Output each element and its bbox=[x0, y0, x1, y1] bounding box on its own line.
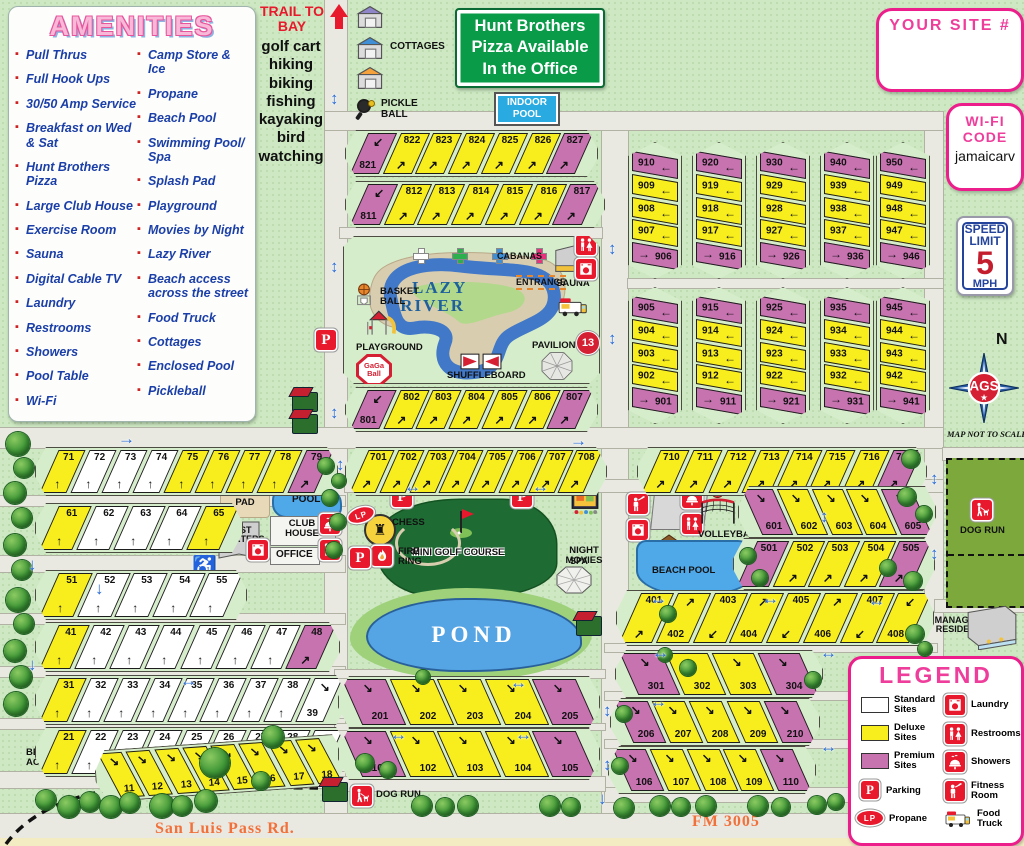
site-number: 75 bbox=[187, 453, 198, 463]
laundry-icon bbox=[628, 520, 648, 540]
legend-item-showers: Showers bbox=[945, 752, 1019, 772]
site-number: 202 bbox=[420, 712, 437, 722]
direction-arrow-icon: ↘ bbox=[778, 656, 788, 668]
amenity-item: Movies by Night bbox=[148, 223, 249, 237]
playground-icon bbox=[366, 309, 398, 344]
site-number: 946 bbox=[903, 253, 920, 263]
basketball-label: BASKETBALL bbox=[380, 287, 419, 307]
site-number: 931 bbox=[847, 398, 864, 408]
tree-icon bbox=[696, 796, 716, 816]
direction-arrow-icon: ↗ bbox=[510, 478, 520, 490]
your-site-box: YOUR SITE # bbox=[876, 8, 1024, 92]
direction-arrow-icon: ↑ bbox=[95, 602, 101, 614]
traffic-arrow-icon: ↔ bbox=[180, 672, 197, 689]
direction-arrow-icon: → bbox=[638, 248, 650, 260]
direction-arrow-icon: ← bbox=[852, 184, 864, 196]
site-number: 704 bbox=[459, 453, 476, 463]
site-number: 919 bbox=[702, 181, 719, 191]
tree-icon bbox=[918, 642, 932, 656]
laundry-icon bbox=[576, 259, 596, 279]
site-number: 805 bbox=[501, 393, 518, 403]
site-number: 904 bbox=[638, 326, 655, 336]
amenity-item: Camp Store & Ice bbox=[148, 48, 249, 77]
direction-arrow-icon: ↑ bbox=[196, 654, 202, 666]
direction-arrow-icon: ← bbox=[660, 351, 672, 363]
lazy-river-area: LAZYRIVER CABANAS ENTRANCE SAUNA BASKETB… bbox=[343, 236, 600, 384]
sauna-label: SAUNA bbox=[556, 279, 590, 289]
legend-label: Food Truck bbox=[977, 809, 1019, 829]
direction-arrow-icon: ↗ bbox=[494, 159, 504, 171]
tree-icon bbox=[614, 798, 634, 818]
tree-icon bbox=[6, 432, 30, 456]
traffic-arrow-icon: ↕ bbox=[608, 330, 617, 347]
direction-arrow-icon: ↑ bbox=[204, 535, 210, 547]
site-number: 827 bbox=[567, 136, 584, 146]
amenities-panel: AMENITIES Pull ThrusFull Hook Ups30/50 A… bbox=[8, 6, 256, 422]
site-number: 47 bbox=[276, 628, 287, 638]
tree-icon bbox=[808, 796, 826, 814]
legend-label: Deluxe Sites bbox=[894, 723, 941, 743]
site-strip: ↘106↘107↘108↘109↘110 bbox=[608, 746, 816, 794]
site-number: 77 bbox=[249, 453, 260, 463]
site-number: 923 bbox=[766, 349, 783, 359]
site-941: →941 bbox=[880, 387, 926, 415]
site-number: 78 bbox=[280, 453, 291, 463]
trail-arrow-icon bbox=[330, 4, 348, 17]
site-number: 405 bbox=[793, 596, 810, 606]
site-number: 41 bbox=[65, 628, 76, 638]
trail-activities: golf carthikingbikingfishingkayakingbird… bbox=[252, 38, 330, 166]
direction-arrow-icon: ↑ bbox=[231, 654, 237, 666]
direction-arrow-icon: → bbox=[766, 393, 778, 405]
site-number: 713 bbox=[763, 453, 780, 463]
amenity-item: Sauna bbox=[26, 247, 137, 261]
dumpster-icon bbox=[322, 782, 348, 802]
site-number: 716 bbox=[863, 453, 880, 463]
direction-arrow-icon: ↑ bbox=[271, 478, 277, 490]
site-strip: ↘206↘207↘208↘209↘210 bbox=[610, 698, 820, 746]
direction-arrow-icon: ↘ bbox=[667, 704, 677, 716]
traffic-arrow-icon: ↔ bbox=[650, 590, 667, 607]
site-number: 63 bbox=[140, 509, 151, 519]
site-number: 403 bbox=[719, 596, 736, 606]
legend-item-standard-sites: Standard Sites bbox=[861, 695, 941, 715]
tree-icon bbox=[12, 508, 32, 528]
tree-icon bbox=[880, 560, 896, 576]
restrooms-icon bbox=[945, 724, 965, 744]
direction-arrow-icon: ↑ bbox=[278, 707, 284, 719]
site-number: 926 bbox=[783, 253, 800, 263]
traffic-arrow-icon: ↕ bbox=[930, 470, 939, 487]
direction-arrow-icon: ← bbox=[852, 161, 864, 173]
amenity-item: Playground bbox=[148, 199, 249, 213]
direction-arrow-icon: ← bbox=[724, 206, 736, 218]
amenity-item: Breakfast on Wed & Sat bbox=[26, 121, 137, 150]
fire-ring-icon bbox=[372, 546, 392, 566]
legend-label: Parking bbox=[886, 785, 921, 796]
laundry-icon bbox=[248, 540, 268, 560]
site-number: 826 bbox=[534, 136, 551, 146]
site-number: 802 bbox=[403, 393, 420, 403]
direction-arrow-icon: ↘ bbox=[779, 704, 789, 716]
site-number: 14 bbox=[208, 778, 220, 789]
direction-arrow-icon: ← bbox=[908, 161, 920, 173]
site-number: 938 bbox=[830, 204, 847, 214]
direction-arrow-icon: ↑ bbox=[130, 535, 136, 547]
tree-icon bbox=[195, 790, 217, 812]
traffic-arrow-icon: ↕ bbox=[930, 545, 939, 562]
trail-to-bay-title: TRAIL TOBAY bbox=[256, 4, 328, 33]
direction-arrow-icon: ↙ bbox=[781, 628, 791, 640]
direction-arrow-icon: ↙ bbox=[374, 187, 384, 199]
direction-arrow-icon: ↗ bbox=[560, 414, 570, 426]
direction-arrow-icon: ↙ bbox=[855, 628, 865, 640]
direction-arrow-icon: ← bbox=[724, 306, 736, 318]
legend-item-restrooms: Restrooms bbox=[945, 724, 1019, 744]
site-strip: 905←904←903←902←→901 bbox=[628, 287, 682, 424]
site-strip: ↙801802↗803↗804↗805↗806↗807↗ bbox=[345, 387, 598, 432]
direction-arrow-icon: ← bbox=[724, 184, 736, 196]
direction-arrow-icon: ← bbox=[788, 306, 800, 318]
direction-arrow-icon: ↑ bbox=[91, 654, 97, 666]
site-strip: 701↗702↗703↗704↗705↗706↗707↗708↗ bbox=[345, 447, 607, 496]
direction-arrow-icon: ↗ bbox=[300, 478, 310, 490]
amenity-item: Full Hook Ups bbox=[26, 72, 137, 86]
site-number: 25 bbox=[192, 733, 203, 743]
site-number: 206 bbox=[638, 730, 655, 740]
site-number: 22 bbox=[96, 733, 107, 743]
site-number: 301 bbox=[647, 682, 664, 692]
amenity-item: Beach access across the street bbox=[148, 272, 249, 301]
site-931: →931 bbox=[824, 387, 870, 415]
site-strip: ↘301↘302↘303↘304 bbox=[615, 650, 823, 698]
legend-item-laundry: Laundry bbox=[945, 695, 1019, 715]
tree-icon bbox=[252, 772, 270, 790]
site-number: 908 bbox=[638, 204, 655, 214]
direction-arrow-icon: ↘ bbox=[137, 753, 148, 766]
direction-arrow-icon: ↗ bbox=[532, 210, 542, 222]
site-number: 918 bbox=[702, 204, 719, 214]
site-number: 302 bbox=[693, 682, 710, 692]
direction-arrow-icon: → bbox=[830, 393, 842, 405]
site-number: 105 bbox=[563, 764, 580, 774]
site-number: 940 bbox=[830, 158, 847, 168]
direction-arrow-icon: ← bbox=[724, 329, 736, 341]
chess-label: CHESS bbox=[392, 518, 425, 528]
direction-arrow-icon: ↑ bbox=[57, 602, 63, 614]
direction-arrow-icon: ← bbox=[852, 229, 864, 241]
site-921: →921 bbox=[760, 387, 806, 415]
site-number: 15 bbox=[236, 776, 248, 787]
traffic-arrow-icon: ↔ bbox=[515, 726, 532, 743]
site-number: 104 bbox=[515, 764, 532, 774]
speed-word: SPEED bbox=[965, 223, 1006, 235]
site-strip: 41↑42↑43↑44↑45↑46↑47↑48↗ bbox=[35, 622, 340, 672]
direction-arrow-icon: ↗ bbox=[685, 596, 695, 608]
site-number: 906 bbox=[655, 253, 672, 263]
direction-arrow-icon: ↑ bbox=[126, 654, 132, 666]
spa-icon bbox=[554, 565, 594, 600]
traffic-arrow-icon: ↕ bbox=[330, 90, 339, 107]
direction-arrow-icon: ↘ bbox=[826, 492, 836, 504]
direction-arrow-icon: ← bbox=[908, 184, 920, 196]
site-number: 73 bbox=[125, 453, 136, 463]
site-number: 38 bbox=[288, 681, 299, 691]
site-strip: 935←934←933←932←→931 bbox=[820, 287, 874, 424]
direction-arrow-icon: ← bbox=[852, 306, 864, 318]
tree-icon bbox=[58, 796, 80, 818]
speed-limit-sign: SPEED LIMIT 5 MPH bbox=[956, 216, 1014, 296]
direction-arrow-icon: ↑ bbox=[267, 654, 273, 666]
laundry-icon bbox=[945, 695, 965, 715]
tree-icon bbox=[540, 796, 560, 816]
direction-arrow-icon: ↘ bbox=[732, 656, 742, 668]
site-number: 941 bbox=[903, 398, 920, 408]
site-number: 920 bbox=[702, 158, 719, 168]
site-number: 502 bbox=[797, 544, 814, 554]
amenity-item: Pull Thrus bbox=[26, 48, 137, 62]
traffic-arrow-icon: ↓ bbox=[28, 556, 37, 573]
direction-arrow-icon: ← bbox=[852, 374, 864, 386]
amenity-item: Lazy River bbox=[148, 247, 249, 261]
traffic-arrow-icon: ↔ bbox=[390, 726, 407, 743]
direction-arrow-icon: ↑ bbox=[161, 654, 167, 666]
direction-arrow-icon: ← bbox=[788, 374, 800, 386]
site-number: 811 bbox=[360, 212, 376, 222]
site-number: 504 bbox=[868, 544, 885, 554]
amenity-item: Propane bbox=[148, 87, 249, 101]
site-strip: 51↑52↑53↑54↑55↑ bbox=[35, 570, 247, 620]
direction-arrow-icon: ↗ bbox=[499, 210, 509, 222]
svg-text:★: ★ bbox=[980, 392, 988, 402]
site-911: →911 bbox=[696, 387, 742, 415]
traffic-arrow-icon: ↕ bbox=[336, 456, 345, 473]
direction-arrow-icon: ↘ bbox=[109, 755, 120, 768]
site-number: 948 bbox=[886, 204, 903, 214]
site-number: 924 bbox=[766, 326, 783, 336]
direction-arrow-icon: ← bbox=[852, 206, 864, 218]
direction-arrow-icon: ← bbox=[908, 374, 920, 386]
parking-icon: P bbox=[316, 330, 336, 350]
site-number: 932 bbox=[830, 372, 847, 382]
site-number: 949 bbox=[886, 181, 903, 191]
tree-icon bbox=[150, 794, 174, 818]
playground-label: PLAYGROUND bbox=[356, 343, 423, 353]
site-901: →901 bbox=[632, 387, 678, 415]
direction-arrow-icon: ↘ bbox=[738, 752, 748, 764]
tree-icon bbox=[416, 670, 430, 684]
direction-arrow-icon: ↑ bbox=[54, 759, 60, 771]
direction-arrow-icon: ↑ bbox=[214, 707, 220, 719]
site-number: 505 bbox=[904, 544, 921, 554]
amenity-item: Digital Cable TV bbox=[26, 272, 137, 286]
resort-map: San Luis Pass Rd. FM 3005 AMENITIES Pull… bbox=[0, 0, 1024, 846]
direction-arrow-icon: ↗ bbox=[832, 596, 842, 608]
site-number: 32 bbox=[96, 681, 107, 691]
legend-item-parking: PParking bbox=[861, 781, 921, 799]
tree-icon bbox=[898, 488, 916, 506]
site-number: 24 bbox=[160, 733, 171, 743]
legend-label: Propane bbox=[889, 813, 927, 824]
site-number: 950 bbox=[886, 158, 903, 168]
site-number: 711 bbox=[697, 453, 713, 463]
direction-arrow-icon: ← bbox=[724, 351, 736, 363]
fire-ring-label: FIRERING bbox=[398, 547, 422, 567]
traffic-arrow-icon: ↔ bbox=[820, 738, 837, 755]
indoor-pool-sign: INDOORPOOL bbox=[494, 92, 560, 126]
tree-icon bbox=[80, 792, 100, 812]
direction-arrow-icon: ↘ bbox=[306, 741, 317, 754]
site-number: 927 bbox=[766, 227, 783, 237]
tree-icon bbox=[356, 754, 374, 772]
traffic-arrow-icon: ↔ bbox=[650, 693, 667, 710]
site-number: 708 bbox=[578, 453, 595, 463]
svg-text:AGS: AGS bbox=[969, 378, 998, 393]
traffic-arrow-icon: → bbox=[570, 432, 587, 449]
direction-arrow-icon: ↗ bbox=[431, 210, 441, 222]
legend-label: Laundry bbox=[971, 700, 1008, 710]
fitness-icon bbox=[945, 781, 965, 801]
direction-arrow-icon: ↘ bbox=[640, 656, 650, 668]
site-number: 52 bbox=[104, 576, 115, 586]
site-number: 109 bbox=[746, 778, 763, 788]
tree-icon bbox=[330, 514, 346, 530]
site-number: 905 bbox=[638, 303, 655, 313]
cottages-label: COTTAGES bbox=[390, 42, 445, 53]
traffic-arrow-icon: ↔ bbox=[762, 590, 779, 607]
direction-arrow-icon: ↗ bbox=[527, 414, 537, 426]
direction-arrow-icon: → bbox=[702, 393, 714, 405]
direction-arrow-icon: ← bbox=[788, 161, 800, 173]
traffic-arrow-icon: ↕ bbox=[603, 756, 612, 773]
direction-arrow-icon: → bbox=[702, 248, 714, 260]
direction-arrow-icon: ↑ bbox=[240, 478, 246, 490]
site-number: 914 bbox=[702, 326, 719, 336]
direction-arrow-icon: ↘ bbox=[363, 734, 373, 746]
direction-arrow-icon: ↑ bbox=[118, 707, 124, 719]
site-number: 74 bbox=[156, 453, 167, 463]
road bbox=[325, 112, 943, 130]
tree-icon bbox=[906, 625, 924, 643]
direction-arrow-icon: → bbox=[638, 393, 650, 405]
dumpster-icon bbox=[576, 616, 602, 636]
direction-arrow-icon: ↘ bbox=[742, 704, 752, 716]
direction-arrow-icon: ↘ bbox=[320, 681, 330, 693]
site-number: 17 bbox=[292, 772, 304, 783]
legend-label: Premium Sites bbox=[894, 751, 941, 771]
pavilion-label: PAVILION bbox=[532, 341, 575, 351]
tree-icon bbox=[6, 588, 30, 612]
road-label-fm3005: FM 3005 bbox=[692, 813, 760, 831]
site-number: 936 bbox=[847, 253, 864, 263]
site-946: →946 bbox=[880, 242, 926, 270]
site-916: →916 bbox=[696, 242, 742, 270]
tree-icon bbox=[332, 474, 346, 488]
legend-swatch bbox=[861, 725, 889, 741]
direction-arrow-icon: ← bbox=[908, 329, 920, 341]
amenity-item: Large Club House bbox=[26, 199, 137, 213]
direction-arrow-icon: ↘ bbox=[410, 734, 420, 746]
site-number: 65 bbox=[213, 509, 224, 519]
site-number: 925 bbox=[766, 303, 783, 313]
site-number: 701 bbox=[370, 453, 387, 463]
site-number: 53 bbox=[142, 576, 153, 586]
direction-arrow-icon: ↘ bbox=[505, 734, 515, 746]
direction-arrow-icon: ← bbox=[660, 374, 672, 386]
site-number: 902 bbox=[638, 372, 655, 382]
direction-arrow-icon: ↗ bbox=[421, 478, 431, 490]
site-strip: 930←929←928←927←→926 bbox=[756, 142, 810, 279]
mini-golf-label: MINI GOLF COURSE bbox=[412, 548, 504, 558]
site-number: 110 bbox=[783, 778, 799, 788]
site-number: 937 bbox=[830, 227, 847, 237]
direction-arrow-icon: ↑ bbox=[170, 602, 176, 614]
tree-icon bbox=[828, 794, 844, 810]
site-strip: 950←949←948←947←→946 bbox=[876, 142, 930, 279]
site-number: 36 bbox=[224, 681, 235, 691]
site-strip: 945←944←943←942←→941 bbox=[876, 287, 930, 424]
site-number: 51 bbox=[66, 576, 77, 586]
tree-icon bbox=[380, 762, 396, 778]
direction-arrow-icon: ↘ bbox=[791, 492, 801, 504]
legend-item-propane: LPPropane bbox=[857, 811, 927, 825]
fitness-icon bbox=[628, 494, 648, 514]
tree-icon bbox=[436, 798, 454, 816]
amenities-list-left: Pull ThrusFull Hook Ups30/50 Amp Service… bbox=[15, 48, 137, 418]
direction-arrow-icon: ↗ bbox=[688, 478, 698, 490]
showers-icon bbox=[945, 752, 965, 772]
site-strip: ↘201↘202↘203↘204↘205 bbox=[338, 676, 600, 728]
legend-swatch bbox=[861, 697, 889, 713]
cottage-icon bbox=[355, 34, 385, 67]
pavilion-icon bbox=[534, 351, 580, 386]
site-number: 210 bbox=[787, 730, 804, 740]
parking-icon: P bbox=[350, 548, 370, 568]
direction-arrow-icon: ↗ bbox=[566, 210, 576, 222]
tree-icon bbox=[902, 450, 920, 468]
legend-item-fitness-room: Fitness Room bbox=[945, 781, 1019, 801]
site-number: 815 bbox=[506, 187, 523, 197]
direction-arrow-icon: ↗ bbox=[634, 628, 644, 640]
compass-north-label: N bbox=[996, 332, 1008, 349]
direction-arrow-icon: ↘ bbox=[702, 752, 712, 764]
site-number: 824 bbox=[469, 136, 486, 146]
tree-icon bbox=[100, 796, 122, 818]
legend-label: Restrooms bbox=[971, 729, 1021, 739]
tree-icon bbox=[4, 692, 28, 716]
site-number: 603 bbox=[835, 522, 852, 532]
amenity-item: Beach Pool bbox=[148, 111, 249, 125]
tree-icon bbox=[660, 606, 676, 622]
site-number: 942 bbox=[886, 372, 903, 382]
tree-icon bbox=[172, 796, 192, 816]
tree-icon bbox=[772, 798, 790, 816]
site-number: 13 bbox=[180, 780, 192, 791]
direction-arrow-icon: ← bbox=[788, 329, 800, 341]
site-strip: 910←909←908←907←→906 bbox=[628, 142, 682, 279]
site-number: 33 bbox=[128, 681, 139, 691]
traffic-arrow-icon: ↓ bbox=[28, 656, 37, 673]
direction-arrow-icon: ← bbox=[724, 161, 736, 173]
site-number: 48 bbox=[311, 628, 322, 638]
direction-arrow-icon: ← bbox=[788, 206, 800, 218]
tree-icon bbox=[120, 793, 140, 813]
direction-arrow-icon: ↗ bbox=[495, 414, 505, 426]
site-number: 605 bbox=[905, 522, 922, 532]
site-number: 303 bbox=[739, 682, 756, 692]
dog-run-icon bbox=[352, 786, 372, 806]
trail-activity: fishing bbox=[252, 93, 330, 111]
